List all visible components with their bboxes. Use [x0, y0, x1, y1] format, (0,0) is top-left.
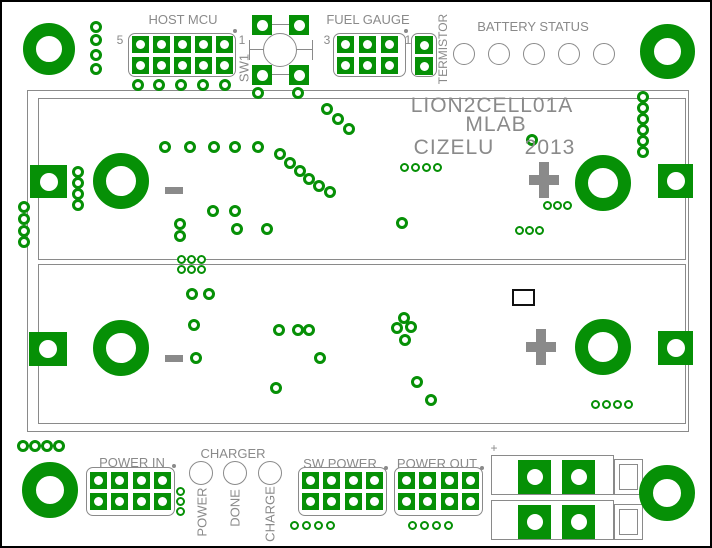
- charger-led-done-label: DONE: [229, 489, 242, 527]
- pad-hole: [178, 61, 187, 70]
- plus-terminal-mark: [539, 162, 549, 198]
- mounting-hole: [22, 462, 78, 518]
- via: [41, 440, 53, 452]
- via: [153, 79, 165, 91]
- pad-hole: [402, 497, 411, 506]
- pin-pad: [419, 472, 436, 489]
- pad-hole: [667, 339, 685, 357]
- pad-hole: [257, 70, 268, 81]
- via: [18, 236, 30, 248]
- via: [190, 352, 202, 364]
- pad-hole: [385, 40, 394, 49]
- plus-terminal-mark: [536, 329, 546, 365]
- pin-pad: [323, 493, 340, 510]
- pad-hole: [157, 61, 166, 70]
- mounting-hole: [639, 465, 695, 521]
- via: [408, 521, 417, 530]
- pin-pad: [366, 493, 383, 510]
- pin-pad: [359, 36, 376, 53]
- battery-status-led: [488, 43, 510, 65]
- pin-pad: [345, 493, 362, 510]
- pin1-marker-dot: [233, 29, 237, 33]
- sw1-outline-line: [312, 40, 313, 60]
- battery-terminal-ring: [575, 155, 631, 211]
- via: [515, 226, 524, 235]
- sw1-label: SW1: [238, 54, 251, 82]
- board-year: 2013: [525, 137, 576, 158]
- via: [273, 324, 285, 336]
- battery-terminal-ring: [575, 319, 631, 375]
- pin-pad: [154, 472, 171, 489]
- pad-hole: [327, 497, 336, 506]
- mounting-hole: [640, 24, 695, 79]
- pad-hole: [115, 476, 124, 485]
- terminal-block-outline: [491, 455, 614, 495]
- via: [176, 487, 185, 496]
- via: [229, 205, 241, 217]
- via: [422, 163, 431, 172]
- charger-led-power-label: POWER: [196, 487, 209, 536]
- pin-pad: [133, 493, 150, 510]
- via: [396, 217, 408, 229]
- host-mcu-pin1-label: 1: [239, 34, 246, 46]
- board-subtitle: MLAB: [465, 114, 526, 135]
- charger-label: CHARGER: [200, 447, 265, 460]
- via: [261, 223, 273, 235]
- via: [274, 148, 286, 160]
- pad-hole: [341, 40, 350, 49]
- pin-pad: [398, 472, 415, 489]
- sw1-pad: [289, 65, 309, 85]
- via: [29, 440, 41, 452]
- via: [17, 440, 29, 452]
- pin-pad: [441, 472, 458, 489]
- pad-hole: [257, 20, 268, 31]
- terminal-pad: [562, 505, 595, 539]
- terminal-pad: [562, 460, 595, 494]
- via: [290, 521, 299, 530]
- battery-contact-pad: [658, 164, 693, 198]
- host-mcu-label: HOST MCU: [148, 13, 217, 26]
- via: [90, 34, 102, 46]
- pad-hole: [157, 40, 166, 49]
- via: [184, 141, 196, 153]
- pad-hole: [220, 40, 229, 49]
- via: [177, 255, 186, 264]
- pad-hole: [327, 476, 336, 485]
- battery-status-led: [558, 43, 580, 65]
- pin-pad: [415, 36, 433, 54]
- via: [207, 205, 219, 217]
- pad-hole: [94, 497, 103, 506]
- via: [229, 141, 241, 153]
- pin-pad: [323, 472, 340, 489]
- terminal-block-outline: [491, 500, 614, 540]
- mounting-hole: [23, 23, 75, 75]
- via: [90, 63, 102, 75]
- via: [391, 322, 403, 334]
- via: [535, 226, 544, 235]
- via: [563, 201, 572, 210]
- pin-pad: [302, 493, 319, 510]
- pin-pad: [216, 57, 233, 74]
- pad-hole: [402, 476, 411, 485]
- pin-pad: [381, 57, 398, 74]
- via: [321, 103, 333, 115]
- sw1-button-circle: [263, 33, 297, 67]
- pcb-board: HOST MCU 5 1 SW1 FUEL GAUGE 3 1 TERMISTO…: [0, 0, 712, 548]
- via: [18, 201, 30, 213]
- via: [188, 319, 200, 331]
- pad-hole: [420, 41, 429, 50]
- pad-hole: [158, 476, 167, 485]
- pin-pad: [462, 493, 479, 510]
- via: [203, 288, 215, 300]
- pin-pad: [302, 472, 319, 489]
- pad-hole: [349, 476, 358, 485]
- via: [18, 213, 30, 225]
- via: [176, 507, 185, 516]
- battery-status-led: [453, 43, 475, 65]
- via: [175, 79, 187, 91]
- via: [187, 265, 196, 274]
- pin-pad: [216, 36, 233, 53]
- via: [332, 113, 344, 125]
- pin-pad: [90, 493, 107, 510]
- pin-pad: [337, 57, 354, 74]
- pin-pad: [462, 472, 479, 489]
- pin-pad: [419, 493, 436, 510]
- terminal-block-outline: [619, 509, 638, 535]
- minus-terminal-mark: [165, 355, 183, 362]
- pad-hole: [199, 61, 208, 70]
- host-mcu-pin5-label: 5: [117, 34, 124, 46]
- via: [624, 400, 633, 409]
- pin-pad: [366, 472, 383, 489]
- via: [411, 163, 420, 172]
- pin-pad: [195, 36, 212, 53]
- pad-hole: [220, 61, 229, 70]
- pad-hole: [40, 173, 58, 191]
- via: [132, 79, 144, 91]
- via: [602, 400, 611, 409]
- via: [177, 265, 186, 274]
- via: [208, 141, 220, 153]
- via: [405, 321, 417, 333]
- pad-hole: [136, 40, 145, 49]
- pad-hole: [420, 62, 429, 71]
- pin-pad: [153, 36, 170, 53]
- terminal-block-outline: [619, 464, 638, 490]
- battery-status-led: [593, 43, 615, 65]
- pad-hole: [294, 20, 305, 31]
- pin-pad: [111, 472, 128, 489]
- via: [219, 79, 231, 91]
- pad-hole: [370, 497, 379, 506]
- via: [399, 334, 411, 346]
- via: [231, 223, 243, 235]
- via: [343, 123, 355, 135]
- pad-hole: [527, 469, 543, 485]
- pin-pad: [90, 472, 107, 489]
- battery-status-led: [523, 43, 545, 65]
- battery-status-label: BATTERY STATUS: [477, 20, 588, 33]
- pad-hole: [466, 476, 475, 485]
- pin-pad: [381, 36, 398, 53]
- via: [400, 163, 409, 172]
- pad-hole: [94, 476, 103, 485]
- via: [433, 163, 442, 172]
- via: [326, 521, 335, 530]
- pad-hole: [306, 476, 315, 485]
- pad-hole: [341, 61, 350, 70]
- pad-hole: [115, 497, 124, 506]
- fuel-gauge-pin3-label: 3: [324, 34, 331, 46]
- via: [197, 79, 209, 91]
- pad-hole: [363, 61, 372, 70]
- via: [425, 394, 437, 406]
- pad-hole: [370, 476, 379, 485]
- sw1-outline-line: [272, 24, 290, 25]
- sw1-pad: [252, 15, 272, 35]
- pin-pad: [441, 493, 458, 510]
- pin-pad: [174, 57, 191, 74]
- termistor-label: TERMISTOR: [437, 14, 449, 84]
- via: [270, 382, 282, 394]
- pad-hole: [571, 514, 587, 530]
- pad-hole: [385, 61, 394, 70]
- fuel-gauge-pin1-label: 1: [405, 34, 412, 46]
- pin-pad: [132, 57, 149, 74]
- terminal-pad: [518, 505, 551, 539]
- pin-pad: [133, 472, 150, 489]
- pad-hole: [294, 70, 305, 81]
- sw1-outline-line: [272, 74, 290, 75]
- pin1-marker-dot: [480, 466, 484, 470]
- via: [543, 201, 552, 210]
- pad-hole: [445, 476, 454, 485]
- pad-hole: [178, 40, 187, 49]
- battery-contact-pad: [658, 331, 693, 365]
- board-designer: CIZELU: [414, 137, 495, 158]
- charger-led: [189, 461, 213, 485]
- via: [252, 141, 264, 153]
- charger-led: [223, 461, 247, 485]
- pad-hole: [527, 514, 543, 530]
- power-in-label: POWER IN: [99, 456, 165, 469]
- sw1-pad: [289, 15, 309, 35]
- pin-pad: [154, 493, 171, 510]
- via: [525, 226, 534, 235]
- pad-hole: [423, 476, 432, 485]
- via: [411, 376, 423, 388]
- pin-pad: [195, 57, 212, 74]
- charger-led: [258, 461, 282, 485]
- pad-hole: [349, 497, 358, 506]
- via: [613, 400, 622, 409]
- via: [186, 288, 198, 300]
- via: [174, 230, 186, 242]
- pad-hole: [306, 497, 315, 506]
- pin1-marker-dot: [172, 464, 176, 468]
- pin-pad: [111, 493, 128, 510]
- pad-hole: [137, 497, 146, 506]
- pin-pad: [359, 57, 376, 74]
- pin-pad: [174, 36, 191, 53]
- smd-pad-outline: [512, 289, 535, 306]
- battery-terminal-ring: [93, 320, 149, 376]
- via: [637, 146, 649, 158]
- terminal-pad: [518, 460, 551, 494]
- pad-hole: [466, 497, 475, 506]
- pad-hole: [158, 497, 167, 506]
- minus-terminal-mark: [165, 187, 183, 194]
- pad-hole: [445, 497, 454, 506]
- pad-hole: [136, 61, 145, 70]
- sw1-pad: [252, 65, 272, 85]
- pad-hole: [137, 476, 146, 485]
- battery-contact-pad: [30, 165, 67, 198]
- via: [432, 521, 441, 530]
- via: [303, 324, 315, 336]
- via: [72, 199, 84, 211]
- via: [53, 440, 65, 452]
- sw1-outline-line: [296, 49, 313, 50]
- via: [197, 255, 206, 264]
- battery-terminal-ring: [93, 153, 149, 209]
- pad-hole: [423, 497, 432, 506]
- via: [314, 521, 323, 530]
- via: [187, 255, 196, 264]
- pin-pad: [153, 57, 170, 74]
- pin-pad: [398, 493, 415, 510]
- power-out-label: POWER OUT: [397, 457, 477, 470]
- via: [444, 521, 453, 530]
- charger-led-charge-label: CHARGE: [264, 486, 277, 542]
- via: [176, 497, 185, 506]
- pad-hole: [667, 172, 685, 190]
- pin1-marker-dot: [384, 466, 388, 470]
- pad-hole: [39, 340, 57, 358]
- pin-pad: [132, 36, 149, 53]
- via: [324, 186, 336, 198]
- via: [252, 87, 264, 99]
- pad-hole: [571, 469, 587, 485]
- pin-pad: [415, 57, 433, 75]
- pad-hole: [363, 40, 372, 49]
- via: [314, 352, 326, 364]
- terminal-plus-label: +: [490, 442, 497, 454]
- battery-contact-pad: [29, 332, 67, 366]
- via: [159, 141, 171, 153]
- via: [197, 265, 206, 274]
- via: [420, 521, 429, 530]
- via: [174, 218, 186, 230]
- via: [302, 521, 311, 530]
- fuel-gauge-label: FUEL GAUGE: [326, 13, 409, 26]
- via: [591, 400, 600, 409]
- via: [90, 21, 102, 33]
- via: [553, 201, 562, 210]
- via: [90, 49, 102, 61]
- sw-power-label: SW POWER: [303, 457, 377, 470]
- via: [292, 87, 304, 99]
- pad-hole: [199, 40, 208, 49]
- pin-pad: [345, 472, 362, 489]
- pin-pad: [337, 36, 354, 53]
